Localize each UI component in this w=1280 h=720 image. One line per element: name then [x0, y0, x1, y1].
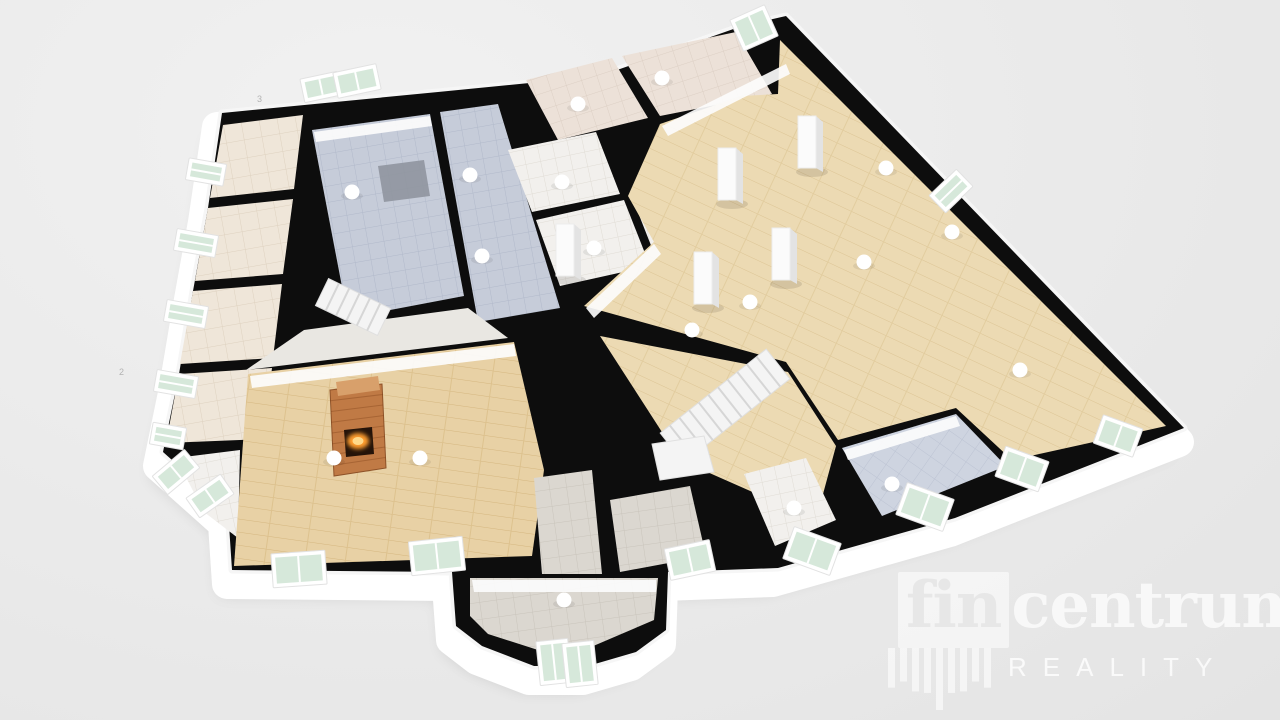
- stair-landing: [652, 436, 714, 480]
- skylight-2: [333, 64, 381, 99]
- bay-door-2: [562, 640, 598, 687]
- room-number-label: 2: [119, 367, 124, 377]
- window-living-1: [271, 550, 327, 588]
- floorplan-scene: 23: [0, 0, 1280, 720]
- garage-mat: [378, 160, 430, 202]
- floor-room-left-1: [210, 115, 303, 198]
- interior-wall-face: [472, 580, 656, 592]
- screenshot-root: { "watermark": { "brand_fin": "fin", "br…: [0, 0, 1280, 720]
- room-number-label: 3: [257, 94, 262, 104]
- floor-entry-stem: [534, 470, 602, 574]
- floorplan-3d-render: 23 fincentrum® REALITY: [0, 0, 1280, 720]
- window-living-2: [408, 536, 465, 575]
